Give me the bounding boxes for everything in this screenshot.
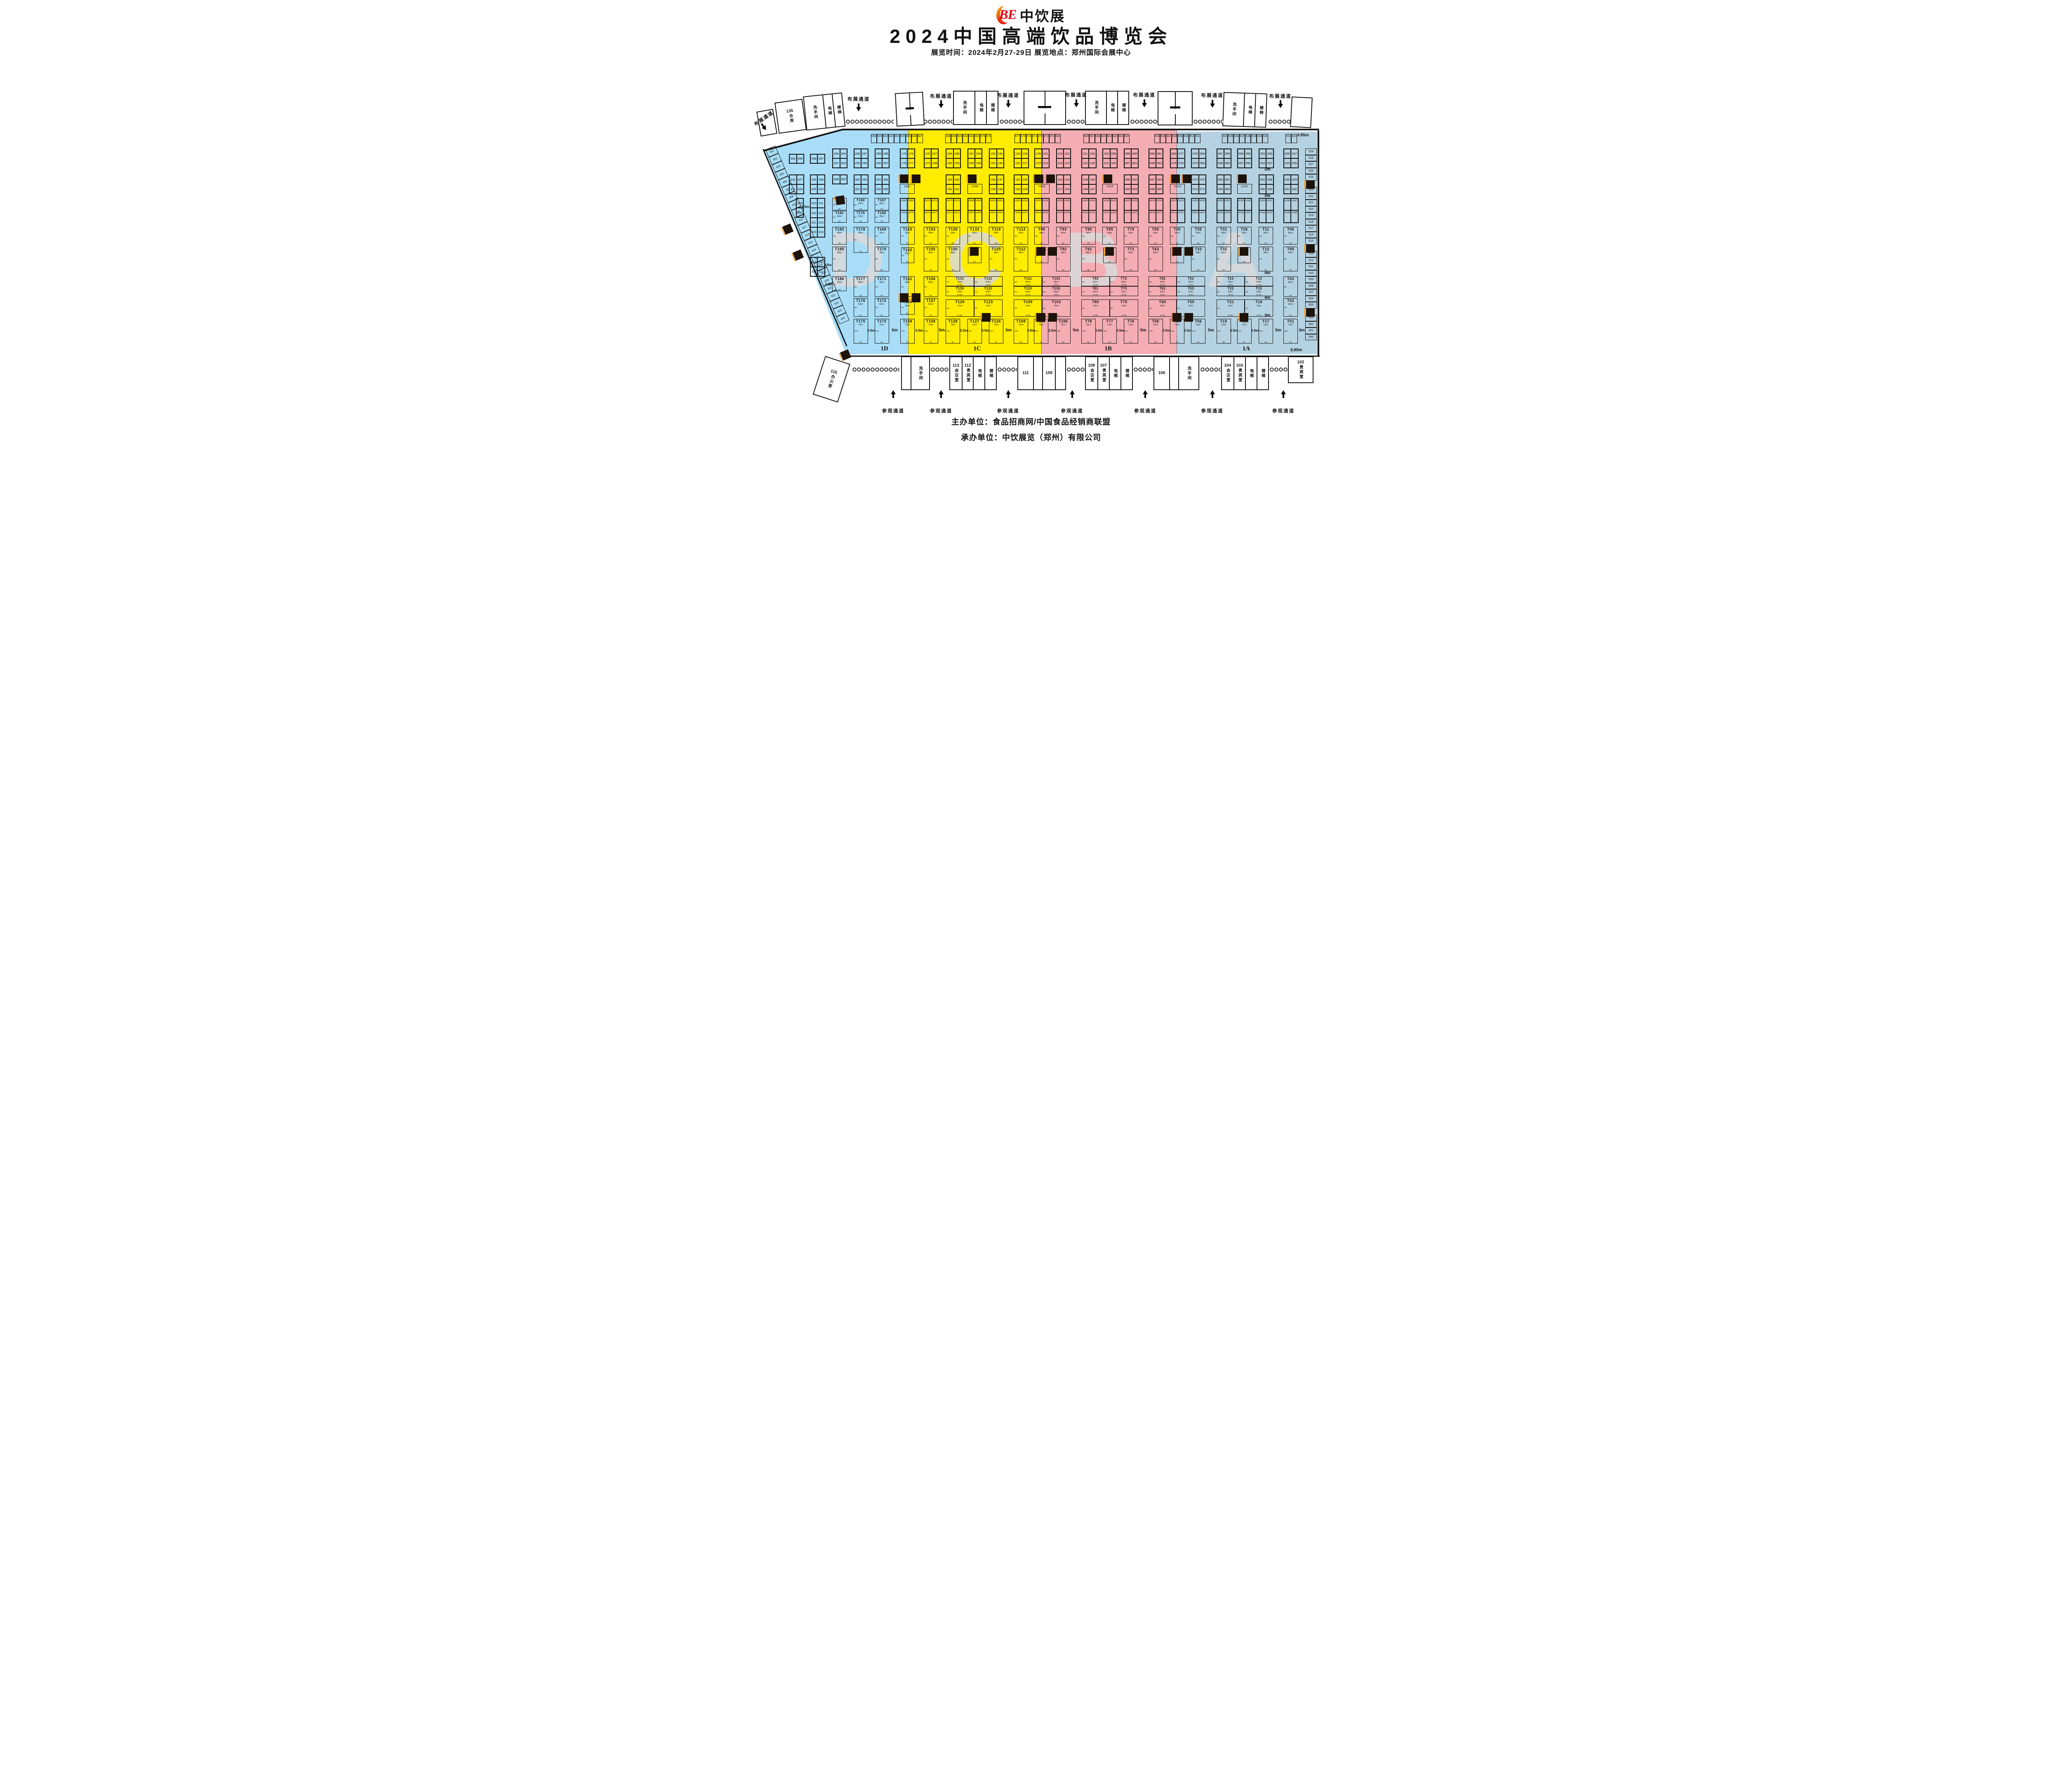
booth-grid: 087083086085 bbox=[1149, 174, 1164, 194]
booth-area: 50m² bbox=[1149, 291, 1177, 293]
booth-cell-H222: H222 bbox=[1124, 210, 1131, 222]
booth-cell-557: 557 bbox=[1166, 134, 1172, 143]
booth-name: T03 bbox=[1284, 277, 1297, 281]
booth-cell-161: 161 bbox=[953, 184, 960, 194]
booth-cell-095: 095 bbox=[1124, 184, 1131, 194]
booth-bottom-dim: 12.5m bbox=[1043, 294, 1070, 296]
booth-bottom-dim: 12.5m bbox=[1217, 294, 1245, 296]
booth-name: T186 bbox=[833, 277, 846, 281]
arrow-head bbox=[939, 104, 944, 108]
booth-cell-151: 151 bbox=[989, 158, 996, 168]
dim-label: 3.5m bbox=[801, 205, 809, 209]
booth-cell-H226: H226 bbox=[1110, 210, 1117, 222]
booth-area: 72m² bbox=[1191, 324, 1205, 326]
booth-area: 72m² bbox=[989, 324, 1003, 326]
booth-left-dim: 4m bbox=[1245, 291, 1248, 293]
booth-bottom-dim: 6m bbox=[901, 242, 914, 244]
booth-name: T168 bbox=[875, 212, 889, 215]
booth-name: T52 bbox=[1177, 277, 1205, 280]
booth-left-dim: 12m bbox=[968, 330, 972, 332]
booth-cell-326: 326 bbox=[810, 175, 817, 184]
booth-cell-H230: H230 bbox=[1089, 198, 1096, 210]
room-empty bbox=[1169, 357, 1178, 390]
booth-cell-328: 328 bbox=[797, 184, 804, 194]
booth-cell-505: 505 bbox=[1305, 302, 1317, 308]
booth-name: T173 bbox=[875, 320, 889, 323]
booth-cell-292: 292 bbox=[875, 184, 882, 194]
booth-cell-176: 176 bbox=[907, 149, 914, 158]
booth-cell-585: 585 bbox=[951, 134, 957, 143]
booth-grid-h: H273H270H272H271 bbox=[946, 198, 961, 223]
booth-area: 54m² bbox=[854, 232, 868, 234]
booth-left-dim: 4m bbox=[1043, 281, 1045, 283]
room-number: 106 bbox=[1158, 371, 1165, 375]
booth-cell-H207: H207 bbox=[1199, 210, 1206, 222]
booth-T19: T1972m²12m6m bbox=[1217, 319, 1231, 344]
booth-name: T180 bbox=[854, 199, 868, 202]
booth-cell-H195: H195 bbox=[1259, 198, 1266, 210]
booth-name: T167 bbox=[875, 199, 889, 202]
room-number: 104 bbox=[1224, 364, 1231, 368]
expo-title: 2024中国高端饮品博览会 bbox=[730, 21, 1332, 49]
booth-left-dim: 4m bbox=[975, 281, 977, 283]
booth-T02: T0254m²9m6m bbox=[1283, 298, 1298, 317]
facility-block-bottom: 115办公室 bbox=[813, 356, 850, 402]
booth-cell-313: 313 bbox=[817, 218, 824, 227]
booth-name: T162 bbox=[902, 248, 914, 252]
booth-cell-099: 099 bbox=[1110, 149, 1117, 158]
booth-area: 48m² bbox=[875, 281, 889, 284]
booth-name: T56 bbox=[1191, 320, 1205, 323]
booth-cell-158: 158 bbox=[953, 149, 960, 158]
booth-bottom-dim: 12.5m bbox=[1082, 284, 1109, 286]
booth-area: 54m² bbox=[1284, 303, 1297, 306]
booth-T185: T18548m²8m6m bbox=[832, 247, 847, 271]
booth-bottom-dim: 6m bbox=[1103, 341, 1116, 343]
facility-block-top: 135仓库 bbox=[774, 99, 806, 134]
booth-cell-288: 288 bbox=[882, 149, 889, 158]
door-coil bbox=[999, 119, 1023, 124]
room-113会议室: 113会议室 bbox=[950, 357, 962, 390]
booth-cell-508: 508 bbox=[1305, 283, 1317, 290]
booth-area: 48m² bbox=[1259, 252, 1273, 254]
booth-cell-056: 056 bbox=[1245, 158, 1252, 168]
booth-T107: T10772m²12m6m bbox=[1034, 319, 1048, 344]
booth-cell-295: 295 bbox=[861, 175, 868, 184]
booth-name: T26 bbox=[1238, 228, 1251, 231]
zone-area-label-1D: 1D bbox=[880, 346, 888, 353]
booth-grid-h: H223H220H222H221 bbox=[1124, 198, 1139, 223]
booth-cell-075: 075 bbox=[1191, 158, 1198, 168]
booth-bottom-dim: 6m bbox=[1284, 314, 1297, 316]
booth-bottom-dim: 12.5m bbox=[1110, 314, 1138, 316]
booth-bottom-dim: 6m bbox=[1014, 242, 1028, 244]
booth-left-dim: 12m bbox=[876, 330, 879, 332]
booth-cell-066: 066 bbox=[1217, 158, 1224, 168]
dim-label: 3.5m bbox=[825, 282, 833, 286]
booth-left-dim: 8m bbox=[990, 258, 992, 260]
dim-label: 6.85m bbox=[1290, 348, 1302, 352]
booth-left-dim: 9m bbox=[925, 306, 927, 308]
booth-left-dim: 6m bbox=[925, 235, 927, 237]
room-楼梯: 楼梯 bbox=[1117, 92, 1128, 124]
booth-bottom-dim: 6m bbox=[1082, 269, 1095, 271]
booth-cell-301: 301 bbox=[854, 184, 861, 194]
booth-left-dim: 6m bbox=[1015, 235, 1017, 237]
booth-bottom-dim: 6m bbox=[968, 242, 982, 244]
arrow-stem bbox=[1007, 394, 1009, 398]
booth-grid-h: H259H256H258H257 bbox=[1014, 198, 1029, 223]
booth-cell-575: 575 bbox=[1026, 134, 1032, 143]
booth-left-dim: 4m bbox=[1043, 291, 1045, 293]
booth-cell-078: 078 bbox=[1177, 158, 1184, 168]
door-coil bbox=[1269, 367, 1288, 372]
arrow-up-icon bbox=[1143, 390, 1148, 398]
booth-left-dim: 6m bbox=[1082, 307, 1085, 309]
booth-name: T31 bbox=[1217, 228, 1231, 231]
booth-bottom-dim: 6m bbox=[1284, 294, 1297, 297]
facility-block-top bbox=[1024, 91, 1066, 125]
booth-bottom-dim: 12.5m bbox=[1043, 284, 1070, 286]
booth-area: 48m² bbox=[1057, 252, 1070, 254]
booth-T52: T5250m²4m12.5m bbox=[1177, 276, 1205, 286]
booth-cell-033: 033 bbox=[1284, 158, 1291, 168]
booth-T85: T8536m²6m6m bbox=[1102, 227, 1117, 245]
booth-cell-515: 515 bbox=[1305, 238, 1317, 245]
booth-cell-H278: H278 bbox=[924, 210, 931, 222]
booth-T157: T15754m²9m6m bbox=[924, 298, 938, 317]
booth-grid: 051038050039 bbox=[1259, 174, 1274, 194]
booth-name: T02 bbox=[1284, 299, 1297, 303]
booth-cell-312: 312 bbox=[817, 208, 824, 217]
booth-bottom-dim: 6m bbox=[1170, 341, 1184, 343]
booth-cell-332: 332 bbox=[789, 175, 796, 184]
booth-T108: T10872m²12m6m bbox=[1014, 319, 1028, 344]
booth-name: T121 bbox=[975, 277, 1002, 280]
booth-cell-H199: H199 bbox=[1238, 198, 1245, 210]
booth-area: 50m² bbox=[1082, 281, 1109, 283]
dim-label: 3.85m bbox=[1297, 133, 1309, 138]
booth-cell-152: 152 bbox=[989, 149, 996, 158]
booth-cell-500: 500 bbox=[1305, 334, 1317, 341]
booth-bottom-dim: 6m bbox=[968, 341, 982, 343]
booth-cell-093: 093 bbox=[1131, 184, 1138, 194]
booth-area: 36m² bbox=[1238, 232, 1251, 234]
booth-area: 36m² bbox=[1191, 232, 1205, 234]
room-楼梯: 楼梯 bbox=[986, 92, 998, 124]
booth-cell-325: 325 bbox=[810, 184, 817, 194]
room-楼梯: 楼梯 bbox=[1120, 357, 1132, 390]
room-label: 电梯 bbox=[1248, 105, 1252, 114]
booth-cell-076: 076 bbox=[1191, 149, 1198, 158]
booth-left-dim: 8m bbox=[925, 286, 927, 288]
booth-cell-H216: H216 bbox=[1156, 198, 1163, 210]
expo-subtitle: 展览时间：2024年2月27-29日 展览地点：郑州国际会展中心 bbox=[730, 47, 1332, 57]
door-coil bbox=[1066, 119, 1085, 124]
booth-area: 36m² bbox=[1217, 232, 1231, 234]
booth-name: T71 bbox=[1124, 247, 1138, 251]
booth-bottom-dim: 12.5m bbox=[1014, 284, 1042, 286]
booth-cell-590: 590 bbox=[900, 134, 906, 143]
booth-left-dim: 12m bbox=[990, 330, 993, 332]
stand-marker bbox=[1172, 247, 1181, 256]
dim-label: 3.5m bbox=[1116, 328, 1124, 332]
booth-bottom-dim: 12.5m bbox=[1245, 284, 1273, 286]
booth-left-dim: 4m bbox=[1015, 291, 1017, 293]
booth-cell-081: 081 bbox=[1156, 149, 1163, 158]
room-label: 仓库 bbox=[788, 113, 793, 123]
booth-cell-535: 535 bbox=[1251, 134, 1257, 143]
booth-cell-065: 065 bbox=[1217, 175, 1224, 184]
facility-block-top: 洗手间电梯楼梯 bbox=[953, 91, 998, 125]
booth-T162: T16230m²5m6m bbox=[901, 247, 915, 263]
booth-cell-103: 103 bbox=[1089, 149, 1096, 158]
room-103贵宾室: 103贵宾室 bbox=[1233, 357, 1245, 390]
booth-area: 48m² bbox=[1149, 252, 1163, 254]
booth-cell-H259: H259 bbox=[1014, 198, 1021, 210]
booth-T177: T17748m²8m6m bbox=[854, 276, 868, 297]
dim-label: 3.5m bbox=[1230, 328, 1238, 332]
booth-cell-167: 167 bbox=[931, 149, 938, 158]
perimeter-booth-column: 529528527526525 bbox=[1305, 148, 1317, 181]
arrow-head bbox=[1143, 390, 1148, 394]
booth-bottom-dim: 6m bbox=[902, 261, 914, 263]
booth-T58: T5872m²12m6m bbox=[1149, 319, 1163, 344]
room-洗手间: 洗手间 bbox=[1086, 92, 1106, 124]
booth-cell-H211: H211 bbox=[1177, 210, 1184, 222]
booth-cell-115: 115 bbox=[1064, 175, 1071, 184]
booth-grid: 032029031030 bbox=[1283, 174, 1299, 194]
booth-left-dim: 12m bbox=[1259, 330, 1263, 332]
arrow-up-icon bbox=[1210, 390, 1215, 398]
booth-bottom-dim: 6m bbox=[1284, 269, 1297, 271]
stand-marker bbox=[782, 224, 793, 235]
booth-area: 36m² bbox=[1170, 232, 1184, 234]
booth-cell-079: 079 bbox=[1170, 158, 1177, 168]
room-label: 楼梯 bbox=[1121, 103, 1125, 113]
booth-cell-600: 600 bbox=[789, 154, 796, 163]
booth-bottom-dim: 6m bbox=[854, 220, 868, 222]
booth-bottom-dim: 12.5m bbox=[975, 284, 1002, 286]
booth-cell-H257: H257 bbox=[1022, 210, 1029, 222]
booth-left-dim: 6m bbox=[1035, 235, 1038, 237]
zone-area-label-1A: 1A bbox=[1243, 346, 1250, 353]
booth-area: 50m² bbox=[1110, 281, 1138, 283]
booth-cell-H236: H236 bbox=[1064, 210, 1071, 222]
booth-cell-518: 518 bbox=[1305, 219, 1317, 226]
booth-grid: 326309325310 bbox=[810, 174, 825, 194]
booth-cell-517: 517 bbox=[1305, 225, 1317, 232]
booth-cell-H219: H219 bbox=[1149, 198, 1156, 210]
booth-cell-H220: H220 bbox=[1131, 198, 1138, 210]
booth-left-dim: 6m bbox=[833, 216, 836, 218]
arrow-up-icon bbox=[939, 390, 944, 398]
booth-cell-063: 063 bbox=[1217, 184, 1224, 194]
booth-name: T106 bbox=[1057, 320, 1070, 323]
booth-bottom-dim: 6m bbox=[1217, 242, 1231, 244]
facility-block-bottom: 洗手间 bbox=[901, 356, 930, 391]
booth-cell-573: 573 bbox=[1032, 134, 1038, 143]
booth-bottom-dim: 6m bbox=[875, 314, 889, 316]
booth-area: 48m² bbox=[901, 281, 914, 284]
booth-cell-H239: H239 bbox=[1042, 198, 1049, 210]
arrow-head bbox=[856, 107, 861, 111]
booth-cell-520: 520 bbox=[1305, 206, 1317, 213]
booth-cell-576: 576 bbox=[1020, 134, 1026, 143]
dim-label: 5m bbox=[1275, 328, 1281, 333]
booth-grid-h: H199H196H198H197 bbox=[1237, 198, 1252, 223]
door-coil bbox=[1200, 367, 1221, 372]
booth-area: 75m² bbox=[946, 305, 974, 307]
booth-T76: T7672m²12m6m bbox=[1124, 319, 1138, 344]
booth-bottom-dim: 12.5m bbox=[1082, 314, 1109, 316]
booth-grid: 125121123122 bbox=[1034, 148, 1050, 168]
booth-left-dim: 6m bbox=[1192, 235, 1194, 237]
stand-marker bbox=[1048, 247, 1057, 256]
booth-bottom-dim: 12.5m bbox=[1110, 284, 1138, 286]
booth-grid: 080077079078 bbox=[1170, 148, 1185, 168]
booth-area: 72m² bbox=[946, 324, 960, 326]
booth-T131: T13150m²4m12.5m bbox=[946, 276, 974, 286]
perimeter-booth-strip: 596595593592591 bbox=[871, 134, 900, 143]
booth-cell-127: 127 bbox=[1022, 158, 1029, 168]
booth-bottom-dim: 6m bbox=[1035, 242, 1048, 244]
booth-cell-308: 308 bbox=[833, 175, 840, 184]
booth-cell-H237: H237 bbox=[1057, 210, 1064, 222]
booth-cell-531: 531 bbox=[1285, 134, 1291, 143]
booth-cell-165: 165 bbox=[946, 158, 953, 168]
booth-cell-529: 529 bbox=[1305, 148, 1317, 155]
room-empty bbox=[896, 93, 911, 126]
booth-cell-123: 123 bbox=[1035, 158, 1042, 168]
booth-name: T123 bbox=[975, 300, 1002, 304]
booth-cell-571: 571 bbox=[1043, 134, 1049, 143]
booth-T15: T1550m²4m12.5m bbox=[1245, 286, 1273, 296]
booth-cell-536: 536 bbox=[1245, 134, 1251, 143]
booth-cell-591: 591 bbox=[894, 134, 900, 143]
booth-T50: T5036m²6m6m bbox=[1170, 227, 1184, 245]
booth-cell-055: 055 bbox=[1245, 149, 1252, 158]
booth-name: T108 bbox=[1014, 320, 1028, 323]
booth-cell-330: 330 bbox=[796, 208, 803, 217]
booth-cell-050: 050 bbox=[1259, 184, 1266, 194]
booth-cell-H275: H275 bbox=[931, 198, 938, 210]
booth-cell-073: 073 bbox=[1191, 175, 1198, 184]
booth-T133: T13336m²6m6m bbox=[967, 227, 982, 245]
booth-cell-H217: H217 bbox=[1156, 210, 1163, 222]
arrow-head bbox=[891, 390, 896, 394]
room-电梯: 电梯 bbox=[1109, 357, 1120, 390]
booth-left-dim: 6m bbox=[1111, 307, 1113, 309]
booth-bottom-dim: 6m bbox=[1057, 269, 1070, 271]
booth-T163: T16336m²6m6m bbox=[900, 227, 915, 245]
booth-bottom-dim: 6m bbox=[833, 220, 846, 222]
booth-cell-H233: H233 bbox=[1082, 198, 1089, 210]
booth-cell-077: 077 bbox=[1177, 149, 1184, 158]
booth-name: T183 bbox=[833, 228, 846, 231]
booth-area: 36m² bbox=[946, 232, 960, 234]
arrow-head bbox=[1281, 390, 1286, 394]
perimeter-booth-strip: 586585583582581580579578 bbox=[945, 134, 991, 143]
booth-cell-H235: H235 bbox=[1064, 198, 1071, 210]
booth-cell-552: 552 bbox=[1189, 134, 1195, 143]
dim-label: 4m bbox=[1264, 271, 1270, 276]
booth-cell-105: 105 bbox=[1089, 158, 1096, 168]
room-label: 电梯 bbox=[1110, 103, 1114, 113]
booth-area: 48m² bbox=[924, 252, 938, 254]
booth-cell-530: 530 bbox=[1291, 134, 1297, 143]
booth-bottom-dim: 6m bbox=[924, 294, 938, 297]
door-coil bbox=[997, 367, 1017, 372]
arrow-head bbox=[1278, 104, 1283, 108]
room-label: 楼梯 bbox=[1125, 369, 1129, 378]
booth-name: T05 bbox=[1284, 247, 1297, 251]
room-电梯: 电梯 bbox=[1106, 92, 1117, 124]
booth-cell-069: 069 bbox=[1199, 158, 1206, 168]
room-number: 111 bbox=[1022, 371, 1029, 375]
booth-T82: T8250m²4m12.5m bbox=[1081, 276, 1110, 286]
booth-cell-092: 092 bbox=[1131, 175, 1138, 184]
booth-left-dim: 12m bbox=[1125, 330, 1128, 332]
room-104会议室: 104会议室 bbox=[1222, 357, 1233, 390]
arrow-stem bbox=[940, 100, 942, 104]
booth-grid-h: H190H187H189H188 bbox=[1283, 198, 1299, 223]
booth-cell-567: 567 bbox=[1089, 134, 1095, 143]
dim-label: 3.5m bbox=[824, 263, 831, 267]
booth-cell-502: 502 bbox=[1305, 321, 1317, 328]
booth-area: 75m² bbox=[1217, 305, 1245, 307]
booth-area: 50m² bbox=[1245, 281, 1273, 283]
booth-cell-132: 132 bbox=[1014, 158, 1021, 168]
arrow-stem bbox=[1007, 100, 1009, 104]
room-洗手间: 洗手间 bbox=[954, 92, 975, 124]
booth-bottom-dim: 6m bbox=[1217, 269, 1231, 271]
booth-cell-101: 101 bbox=[1103, 158, 1110, 168]
room-楼梯: 楼梯 bbox=[1257, 357, 1268, 390]
booth-name: T158 bbox=[924, 320, 938, 323]
floor-plan-poster: BE 中饮展 2024中国高端饮品博览会 展览时间：2024年2月27-29日 … bbox=[730, 0, 1332, 448]
booth-bottom-dim: 12.5m bbox=[1149, 284, 1177, 286]
booth-bottom-dim: 6m bbox=[875, 208, 889, 210]
booth-name: T16 bbox=[1245, 300, 1273, 304]
booth-cell-085: 085 bbox=[1156, 184, 1163, 194]
room-label: 楼梯 bbox=[1259, 105, 1263, 115]
booth-left-dim: 6m bbox=[1217, 235, 1220, 237]
dim-label: 5m bbox=[1140, 328, 1146, 333]
booth-bottom-dim: 6m bbox=[1034, 341, 1048, 343]
booth-bottom-dim: 12.5m bbox=[1149, 294, 1177, 296]
booth-cell-086: 086 bbox=[1149, 184, 1156, 194]
booth-grid: 332327331328 bbox=[789, 174, 804, 194]
booth-cell-568: 568 bbox=[1083, 134, 1089, 143]
corridor-label-setup: 布展通道 bbox=[1065, 92, 1087, 98]
booth-bottom-dim: 6m bbox=[1170, 242, 1184, 244]
booth-name: T129 bbox=[946, 300, 974, 304]
booth-grid: 133126132127 bbox=[1014, 148, 1029, 168]
booth-area: 36m² bbox=[1259, 232, 1273, 234]
arrow-stem bbox=[892, 394, 894, 398]
booth-T183: T18336m²6m6m bbox=[832, 227, 847, 245]
booth-cell-130: 130 bbox=[1014, 184, 1021, 194]
stand-marker bbox=[1184, 247, 1193, 256]
booth-cell-117: 117 bbox=[1057, 184, 1064, 194]
booth-left-dim: 9m bbox=[1284, 306, 1287, 308]
room-number: 113 bbox=[953, 364, 959, 368]
booth-T176: T17654m²9m6m bbox=[854, 298, 868, 317]
booth-cell-507: 507 bbox=[1305, 289, 1317, 296]
booth-cell-108: 108 bbox=[1082, 184, 1089, 194]
booth-cell-087: 087 bbox=[1149, 175, 1156, 184]
